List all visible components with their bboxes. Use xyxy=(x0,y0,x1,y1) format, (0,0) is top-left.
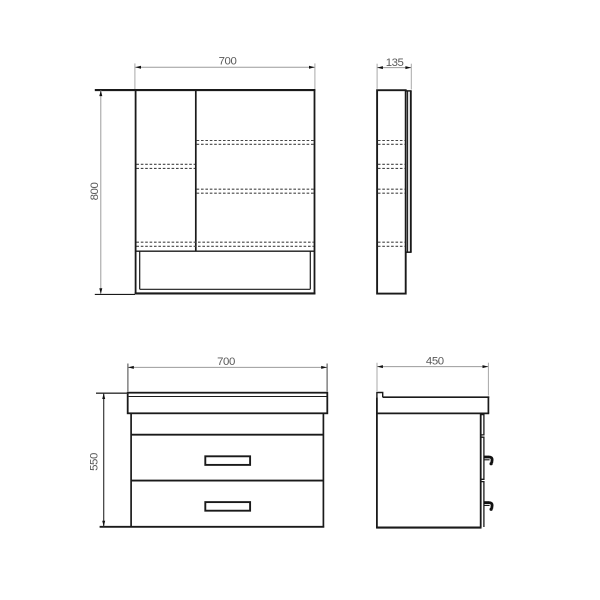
svg-text:800: 800 xyxy=(89,183,101,201)
svg-text:700: 700 xyxy=(219,56,237,68)
svg-text:700: 700 xyxy=(217,356,235,368)
svg-text:135: 135 xyxy=(386,57,404,69)
svg-text:550: 550 xyxy=(89,453,101,471)
svg-text:450: 450 xyxy=(426,356,444,368)
